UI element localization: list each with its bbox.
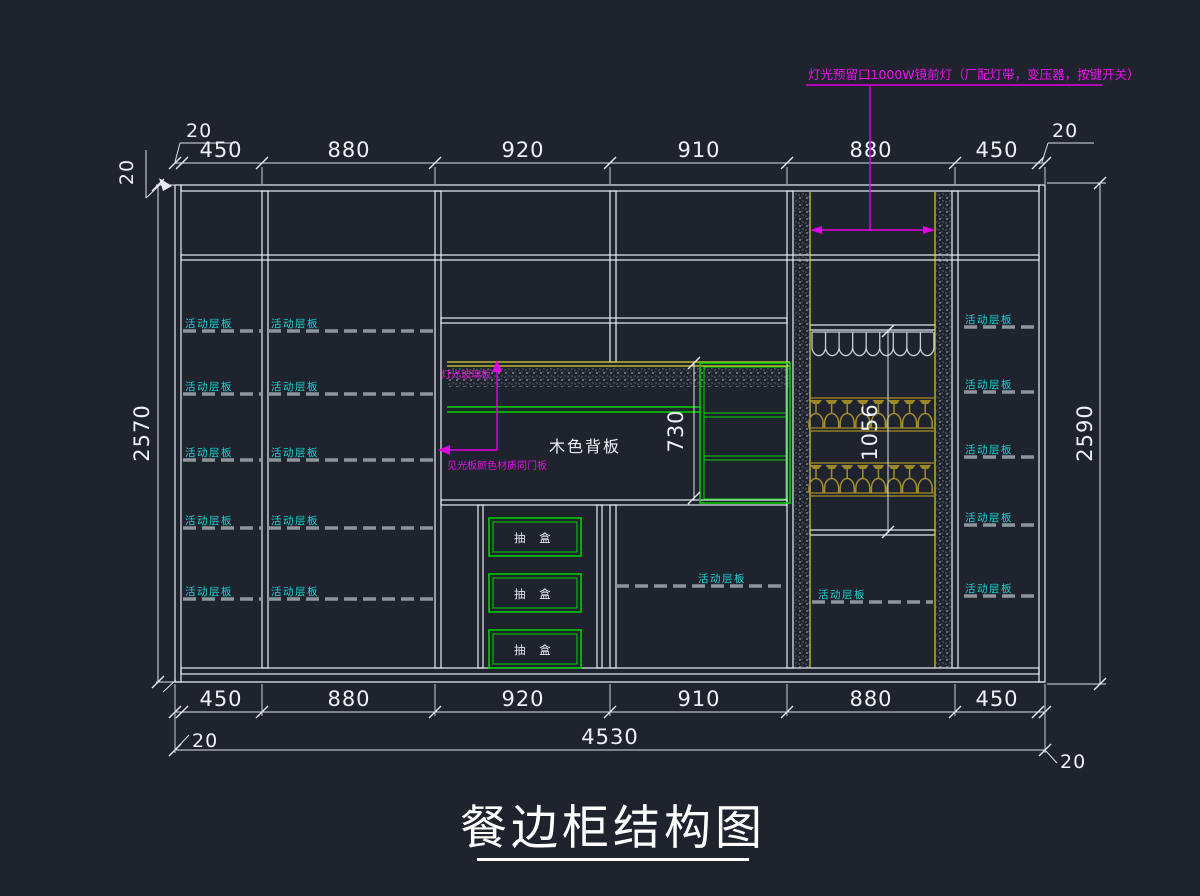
dim-bottom-880b: 880 [849,687,892,711]
dim-bottom-920: 920 [501,687,544,711]
dim-top-880b: 880 [849,138,892,162]
dim-left-height: 2570 [130,404,154,461]
niche-green-shelf [447,407,700,412]
shelf-label: 活动层板 [965,582,1013,595]
dim-top-450b: 450 [975,138,1018,162]
dim-offset-bottom-right: 20 [1060,751,1086,773]
wine-column-right-hatch [936,192,952,668]
dim-bottom-880: 880 [327,687,370,711]
shelf-label: 活动层板 [965,511,1013,524]
dim-offset-left: 20 [116,159,138,185]
drawer-label: 抽 盒 [514,531,556,545]
shelf-label: 活动层板 [965,313,1013,326]
dim-offset-bottom-left: 20 [192,730,218,752]
drawing-title: 餐边柜结构图 [460,801,766,861]
stemware-rack-icon [812,332,934,356]
shelf-labels: 活动层板 活动层板 活动层板 活动层板 活动层板 活动层板 活动层板 活动层板 … [185,313,1013,601]
shelf-label: 活动层板 [185,380,233,393]
dim-bottom-450b: 450 [975,687,1018,711]
title-underline [477,858,749,861]
dim-top-880: 880 [327,138,370,162]
drawer-label: 抽 盒 [514,587,556,601]
dim-offset-top-left: 20 [186,120,212,142]
dim-right-height: 2590 [1073,404,1097,461]
shelf-label: 活动层板 [271,446,319,459]
dim-offset-top-right: 20 [1052,120,1078,142]
dim-top-920: 920 [501,138,544,162]
shelf-label: 活动层板 [818,588,866,601]
dim-wine-height: 1056 [858,403,882,460]
cabinet-carcass [175,185,1045,682]
drawer-label: 抽 盒 [514,643,556,657]
dim-total-width: 4530 [581,725,638,749]
shelf-label: 活动层板 [271,585,319,598]
dim-niche-height: 730 [664,409,688,452]
drawer-boxes: 抽 盒 抽 盒 抽 盒 [489,518,581,668]
shelf-label: 活动层板 [185,446,233,459]
cad-drawing-canvas: 抽 盒 抽 盒 抽 盒 活动层板 活动层板 活动层板 活动层板 活动层板 活动层… [0,0,1200,896]
shelf-label: 活动层板 [965,378,1013,391]
shelf-label: 活动层板 [185,585,233,598]
shelf-label: 活动层板 [271,514,319,527]
shelf-label: 活动层板 [185,514,233,527]
arrow-left-icon [810,226,822,234]
page-title: 餐边柜结构图 [460,801,766,856]
cabinet-structure-drawing: 抽 盒 抽 盒 抽 盒 活动层板 活动层板 活动层板 活动层板 活动层板 活动层… [0,0,1200,896]
shelf-label: 活动层板 [185,317,233,330]
arrow-right-icon [923,226,935,234]
dim-top-910: 910 [677,138,720,162]
material-note: 见光板颜色材质同门板 [447,459,547,472]
shelf-label: 活动层板 [698,572,746,585]
shelf-label: 活动层板 [271,317,319,330]
shelf-label: 活动层板 [271,380,319,393]
lighting-note: 灯光预留口1000W镜前灯（厂配灯带，变压器，按键开关） [808,67,1140,82]
shelf-label: 活动层板 [965,443,1013,456]
glass-panel-note: 灯光玻璃板 [441,368,491,381]
arrow-left-icon [438,445,450,455]
dim-bottom-450: 450 [199,687,242,711]
back-panel-label: 木色背板 [549,437,621,456]
wine-column-left-hatch [794,192,810,668]
dim-bottom-910: 910 [677,687,720,711]
